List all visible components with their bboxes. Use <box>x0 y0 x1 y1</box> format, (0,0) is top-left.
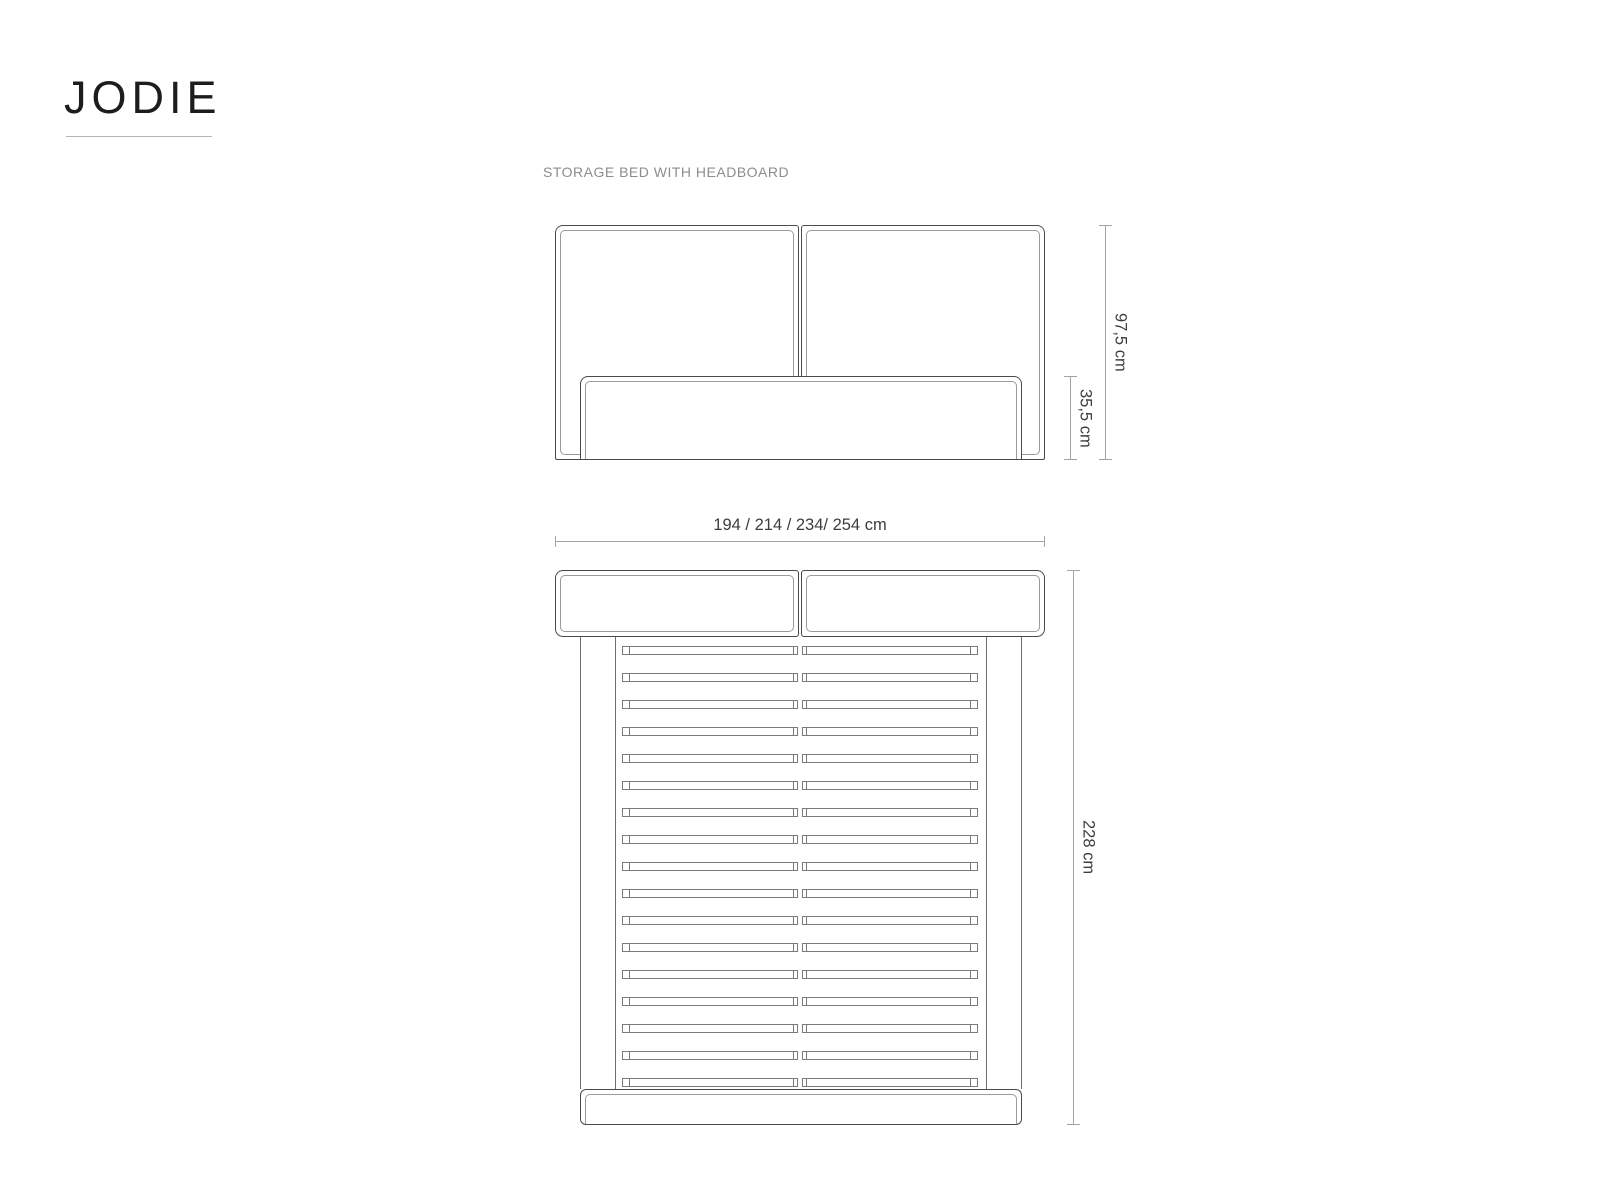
slat-endcap <box>970 1079 971 1086</box>
slat-endcap <box>806 1052 807 1059</box>
slat-right <box>802 889 978 898</box>
footboard-seam <box>585 1094 1017 1124</box>
slat-left <box>622 700 798 709</box>
slat-endcap <box>629 782 630 789</box>
slat-endcap <box>629 890 630 897</box>
slat-endcap <box>970 701 971 708</box>
slat-endcap <box>629 836 630 843</box>
slat-endcap <box>970 971 971 978</box>
slat-endcap <box>806 863 807 870</box>
slat-endcap <box>793 998 794 1005</box>
slat-endcap <box>793 755 794 762</box>
slat-endcap <box>806 917 807 924</box>
slat-right <box>802 1024 978 1033</box>
slat-right <box>802 970 978 979</box>
slat-endcap <box>806 971 807 978</box>
slat-endcap <box>970 728 971 735</box>
slat-endcap <box>629 728 630 735</box>
slat-right <box>802 835 978 844</box>
slat-right <box>802 1051 978 1060</box>
slat-endcap <box>970 836 971 843</box>
slat-endcap <box>793 728 794 735</box>
slat-endcap <box>806 674 807 681</box>
slat-endcap <box>806 944 807 951</box>
slat-left <box>622 727 798 736</box>
slat-endcap <box>629 1052 630 1059</box>
slat-right <box>802 808 978 817</box>
top-view: 228 cm <box>0 0 1600 1200</box>
slat-left <box>622 862 798 871</box>
slat-left <box>622 673 798 682</box>
slat-endcap <box>793 782 794 789</box>
slat-endcap <box>793 674 794 681</box>
length-dim-label: 228 cm <box>1076 570 1100 1125</box>
slat-endcap <box>806 701 807 708</box>
slat-endcap <box>629 917 630 924</box>
slat-endcap <box>793 917 794 924</box>
slat-right <box>802 1078 978 1087</box>
slat-endcap <box>629 1079 630 1086</box>
slat-left <box>622 1051 798 1060</box>
slat-endcap <box>793 647 794 654</box>
slat-right <box>802 673 978 682</box>
slat-endcap <box>970 863 971 870</box>
slat-endcap <box>970 944 971 951</box>
slat-endcap <box>793 701 794 708</box>
slat-left <box>622 997 798 1006</box>
slat-right <box>802 646 978 655</box>
slat-endcap <box>793 944 794 951</box>
slat-right <box>802 781 978 790</box>
slat-right <box>802 862 978 871</box>
slat-left <box>622 835 798 844</box>
slat-endcap <box>629 998 630 1005</box>
slat-endcap <box>806 755 807 762</box>
slat-endcap <box>629 701 630 708</box>
slat-endcap <box>793 971 794 978</box>
length-dim-line <box>1073 570 1074 1125</box>
slat-endcap <box>970 809 971 816</box>
slat-endcap <box>793 863 794 870</box>
slat-endcap <box>970 1052 971 1059</box>
slat-endcap <box>806 1025 807 1032</box>
slat-endcap <box>806 809 807 816</box>
slat-endcap <box>629 809 630 816</box>
slat-left <box>622 781 798 790</box>
slat-endcap <box>793 809 794 816</box>
slat-endcap <box>806 890 807 897</box>
slat-endcap <box>970 917 971 924</box>
slat-endcap <box>629 674 630 681</box>
slat-endcap <box>793 836 794 843</box>
slat-endcap <box>793 1079 794 1086</box>
slat-left <box>622 916 798 925</box>
slat-left <box>622 1078 798 1087</box>
slat-left <box>622 1024 798 1033</box>
slat-right <box>802 700 978 709</box>
slat-endcap <box>970 674 971 681</box>
footboard <box>580 1089 1022 1125</box>
slat-endcap <box>806 1079 807 1086</box>
slat-left <box>622 889 798 898</box>
slat-left <box>622 970 798 979</box>
slat-endcap <box>970 890 971 897</box>
slat-endcap <box>970 755 971 762</box>
slat-right <box>802 997 978 1006</box>
slat-endcap <box>793 890 794 897</box>
slat-endcap <box>793 1025 794 1032</box>
slat-endcap <box>970 998 971 1005</box>
slat-endcap <box>970 782 971 789</box>
slat-grid <box>0 0 1600 1200</box>
slat-endcap <box>806 782 807 789</box>
slat-endcap <box>629 971 630 978</box>
slat-endcap <box>793 1052 794 1059</box>
slat-endcap <box>806 836 807 843</box>
slat-left <box>622 808 798 817</box>
slat-endcap <box>970 1025 971 1032</box>
slat-endcap <box>806 647 807 654</box>
slat-endcap <box>629 863 630 870</box>
slat-left <box>622 646 798 655</box>
spec-sheet: JODIE STORAGE BED WITH HEADBOARD 35,5 cm… <box>0 0 1600 1200</box>
slat-endcap <box>629 1025 630 1032</box>
slat-right <box>802 754 978 763</box>
slat-right <box>802 916 978 925</box>
slat-endcap <box>629 944 630 951</box>
slat-endcap <box>629 755 630 762</box>
slat-right <box>802 727 978 736</box>
slat-endcap <box>970 647 971 654</box>
slat-left <box>622 943 798 952</box>
slat-right <box>802 943 978 952</box>
slat-endcap <box>806 728 807 735</box>
slat-left <box>622 754 798 763</box>
slat-endcap <box>629 647 630 654</box>
slat-endcap <box>806 998 807 1005</box>
